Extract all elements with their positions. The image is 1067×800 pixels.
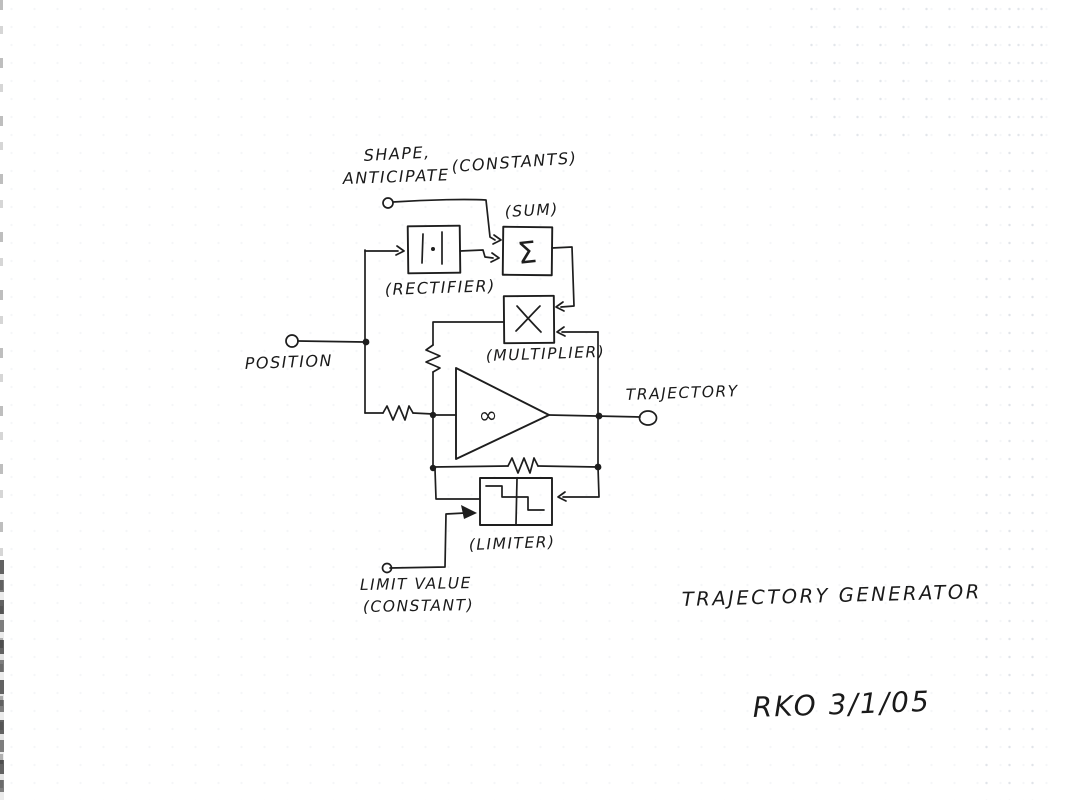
terminal-position — [286, 335, 298, 347]
label-limiter-caption: (LIMITER) — [469, 533, 556, 554]
terminal-shape-anticipate — [383, 198, 393, 208]
wire-resistor-to-opamp-node — [413, 413, 433, 414]
label-position-input: POSITION — [244, 351, 333, 373]
opamp-triangle — [456, 368, 549, 459]
wire-limiter-feed — [563, 467, 599, 497]
infinity-gain-symbol: ∞ — [477, 402, 498, 430]
limiter-saturation-icon — [486, 479, 544, 524]
resistors — [383, 345, 538, 473]
label-trajectory-output: TRAJECTORY — [626, 382, 740, 404]
blocks: Σ ∞ — [408, 226, 554, 525]
junction-feedback-right — [595, 464, 602, 471]
multiply-x-icon — [516, 306, 541, 332]
wire-limit-value — [390, 513, 465, 568]
scanned-schematic-page: Σ ∞ SHAPE, ANTICIPATE (CONSTANTS) (SUM) — [0, 0, 1067, 800]
junction-position-bus — [363, 339, 370, 346]
schematic-drawing: Σ ∞ SHAPE, ANTICIPATE (CONSTANTS) (SUM) — [0, 0, 1067, 800]
label-shape-line1: SHAPE, — [363, 143, 431, 165]
arrow-into-limiter-left — [461, 505, 477, 519]
labels: SHAPE, ANTICIPATE (CONSTANTS) (SUM) (REC… — [244, 143, 982, 724]
label-rectifier-caption: (RECTIFIER) — [384, 276, 496, 299]
label-multiplier-caption: (MULTIPLIER) — [486, 343, 606, 365]
terminals — [286, 198, 657, 573]
drawing-title: TRAJECTORY GENERATOR — [682, 580, 983, 611]
wire-feedback-right — [538, 466, 598, 467]
signature-and-date: RKO 3/1/05 — [752, 685, 931, 724]
label-sum-caption: (SUM) — [504, 200, 559, 221]
absolute-value-icon — [422, 232, 442, 264]
wire-feedback-left — [433, 466, 508, 467]
label-limit-value-line1: LIMIT VALUE — [360, 574, 472, 594]
resistor-position-input — [383, 406, 413, 420]
resistor-feedback — [508, 458, 538, 473]
sigma-symbol: Σ — [516, 235, 539, 272]
terminal-trajectory — [640, 411, 657, 425]
wire-multiplier-output — [433, 322, 504, 345]
junction-output — [596, 413, 603, 420]
label-shape-line2: ANTICIPATE — [341, 165, 449, 188]
junction-feedback-left — [430, 465, 436, 471]
wire-rectifier-to-sum — [460, 250, 493, 258]
wire-limiter-output — [435, 469, 480, 499]
resistor-multiplier-branch — [426, 345, 440, 372]
junction-opamp-input — [430, 412, 436, 418]
wire-opamp-output — [549, 415, 640, 417]
label-constants-note: (CONSTANTS) — [451, 148, 578, 176]
label-limit-value-line2: (CONSTANT) — [363, 596, 475, 616]
wire-sum-to-multiplier — [552, 247, 574, 307]
wire-position-input — [298, 341, 364, 342]
